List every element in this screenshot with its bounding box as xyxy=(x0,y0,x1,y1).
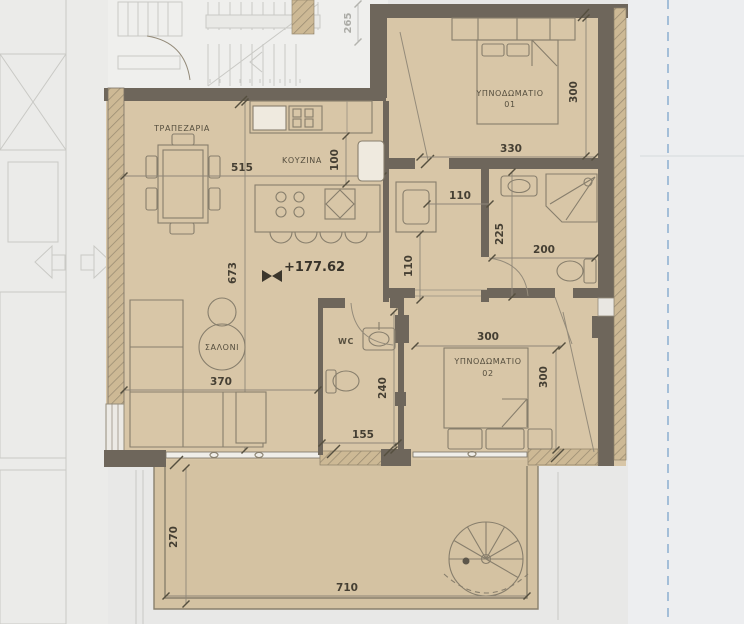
dim-terrace-depth: 270 xyxy=(168,526,180,548)
dim-bath-depth: 225 xyxy=(494,223,506,245)
dim-hall-width: 110 xyxy=(449,190,471,202)
dim-stair-run: 265 xyxy=(343,13,354,34)
floor-plan-canvas: 265 270 710 xyxy=(0,0,744,624)
dim-kitchen-gap: 100 xyxy=(329,149,341,171)
bedroom2-number: 02 xyxy=(482,369,493,378)
bedroom1-label: ΥΠΝΟΔΩΜΑΤΙΟ xyxy=(475,89,543,98)
dim-bath-width: 200 xyxy=(533,244,555,256)
living-label: ΣΑΛΟΝΙ xyxy=(205,343,239,352)
dim-dining-depth: 673 xyxy=(227,262,239,284)
dim-living-width: 370 xyxy=(210,376,232,388)
wc-label: WC xyxy=(338,337,354,346)
terrace: 270 710 xyxy=(154,460,538,609)
chaise-icon xyxy=(236,392,266,443)
kitchen-label: ΚΟΥΖΙΝΑ xyxy=(282,156,322,165)
floor-plan: 265 270 710 xyxy=(0,0,744,624)
dim-terrace-width: 710 xyxy=(336,582,358,594)
bedroom2-label: ΥΠΝΟΔΩΜΑΤΙΟ xyxy=(453,357,521,366)
bedroom1-number: 01 xyxy=(504,100,515,109)
dim-wc-width: 155 xyxy=(352,429,374,441)
dim-wc-depth: 240 xyxy=(377,377,389,399)
dim-bed1-width: 330 xyxy=(500,143,522,155)
dim-bed1-depth: 300 xyxy=(568,81,580,103)
dim-bed2-depth: 300 xyxy=(538,366,550,388)
dim-dining-width: 515 xyxy=(231,162,253,174)
level-text: +177.62 xyxy=(284,260,345,275)
dim-bed2-width: 300 xyxy=(477,331,499,343)
dim-hall-depth: 110 xyxy=(403,255,415,277)
living-window xyxy=(106,404,124,454)
fridge-icon xyxy=(358,141,384,181)
dining-label: ΤΡΑΠΕΖΑΡΙΑ xyxy=(153,124,210,133)
